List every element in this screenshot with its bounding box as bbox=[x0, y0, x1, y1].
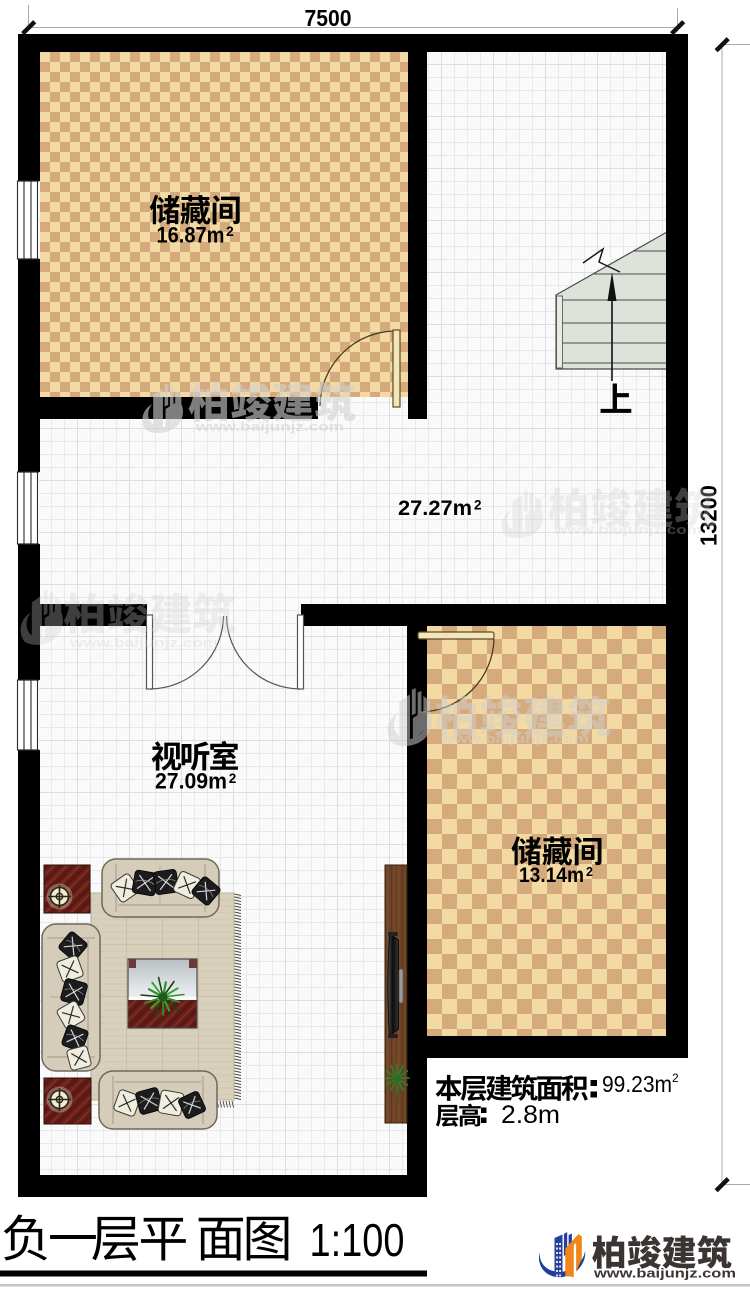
svg-text:2: 2 bbox=[586, 865, 593, 879]
svg-text:www.baijunjz.com: www.baijunjz.com bbox=[195, 419, 344, 434]
svg-text:99.23m: 99.23m bbox=[602, 1071, 672, 1097]
svg-text:27.09m: 27.09m bbox=[155, 769, 227, 794]
svg-text:13.14m: 13.14m bbox=[519, 864, 584, 887]
svg-text:2: 2 bbox=[672, 1071, 679, 1085]
svg-text:1:100: 1:100 bbox=[310, 1214, 405, 1266]
svg-text:2: 2 bbox=[474, 498, 482, 513]
svg-text:2: 2 bbox=[226, 223, 234, 239]
svg-text:www.baijunjz.com: www.baijunjz.com bbox=[440, 731, 589, 746]
svg-text:2: 2 bbox=[229, 771, 237, 786]
svg-text:www.baijunjz.com: www.baijunjz.com bbox=[593, 1266, 736, 1281]
svg-text:www.baijunjz.com: www.baijunjz.com bbox=[69, 635, 218, 650]
svg-text:27.27m: 27.27m bbox=[398, 497, 472, 520]
svg-text:2.8m: 2.8m bbox=[501, 1101, 560, 1129]
svg-text:16.87m: 16.87m bbox=[157, 223, 225, 248]
svg-text:www.baijunjz.com: www.baijunjz.com bbox=[553, 522, 702, 537]
svg-text:7500: 7500 bbox=[305, 5, 352, 31]
